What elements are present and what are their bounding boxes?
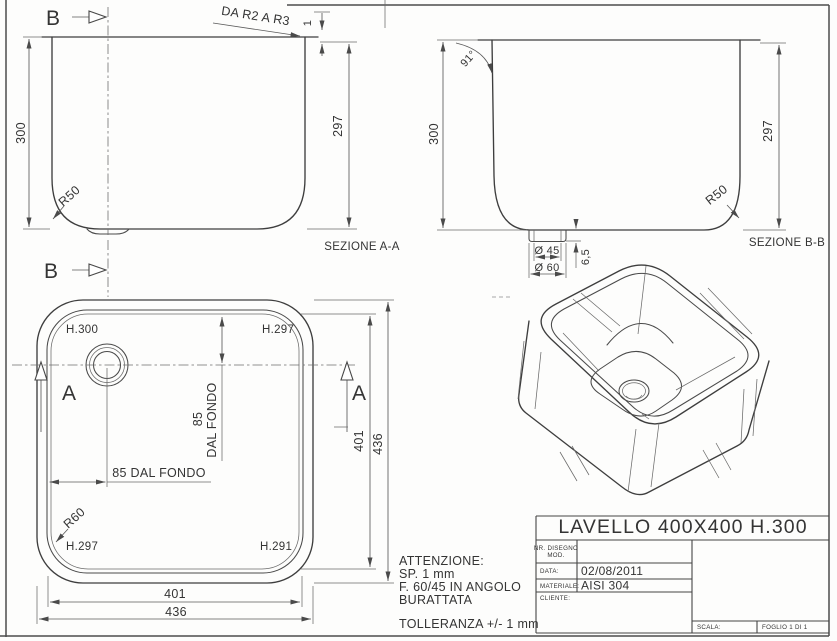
dim-aa-r50-label: R50: [56, 183, 83, 209]
dim-drain-offset-v-word: DAL FONDO: [205, 382, 219, 457]
dim-drain-offset-v-num: 85: [191, 412, 205, 427]
corner-height-top-left: H.300: [66, 324, 98, 336]
titleblock-scala-label: SCALA:: [697, 624, 721, 631]
section-aa-caption: SEZIONE A-A: [324, 241, 400, 253]
corner-height-bottom-right: H.291: [260, 541, 292, 553]
marker-a-left-label: A: [62, 382, 76, 405]
titleblock-materiale-label: MATERIALE:: [540, 583, 579, 590]
notes-block: ATTENZIONE: SP. 1 mm F. 60/45 IN ANGOLO …: [399, 554, 539, 631]
section-bb-view: 91° 300 297 R50 Ø 45 Ø 60 6,5 SEZIONE B-…: [427, 40, 825, 278]
dim-plan-width-inner: 401: [164, 587, 186, 601]
titleblock-data-label: DATA:: [540, 568, 559, 575]
titleblock-title: LAVELLO 400X400 H.300: [558, 516, 807, 538]
section-bb-caption: SEZIONE B-B: [749, 237, 825, 249]
dim-bb-r50-label: R50: [703, 182, 730, 208]
dim-plan-width-outer: 436: [165, 605, 187, 619]
corner-height-top-right: H.297: [262, 324, 294, 336]
marker-b-bottom-label: B: [44, 260, 58, 283]
titleblock-mod-label: MOD.: [547, 552, 564, 559]
note-tolleranza: TOLLERANZA +/- 1 mm: [399, 617, 539, 631]
titleblock-nr-disegno-label: NR. DISEGNO: [534, 545, 578, 552]
dim-bb-300-label: 300: [427, 123, 441, 145]
note-attenzione: ATTENZIONE:: [399, 554, 484, 568]
titleblock-data-value: 02/08/2011: [581, 564, 643, 578]
technical-drawing: B B DA R2 A R3 1 300 297 R50 SEZIONE A-A: [0, 0, 837, 641]
marker-a-right-label: A: [352, 382, 366, 405]
dim-aa-297-label: 297: [331, 115, 345, 137]
dim-plan-depth-outer: 436: [371, 433, 385, 455]
title-block: LAVELLO 400X400 H.300 NR. DISEGNO MOD. D…: [534, 516, 829, 633]
dim-drain-d60-label: Ø 60: [534, 262, 559, 274]
dim-drain-depth-label: 6,5: [580, 249, 592, 265]
note-f6045: F. 60/45 IN ANGOLO: [399, 580, 521, 594]
dim-bb-angle-label: 91°: [458, 48, 479, 69]
drawing-sheet: B B DA R2 A R3 1 300 297 R50 SEZIONE A-A: [0, 0, 837, 641]
dim-drain-offset-h-label: 85 DAL FONDO: [112, 466, 205, 480]
dim-plan-r60-label: R60: [61, 505, 88, 531]
titleblock-foglio-label: FOGLIO 1 DI 1: [762, 624, 808, 631]
corner-height-bottom-left: H.297: [66, 541, 98, 553]
titleblock-cliente-label: CLIENTE:: [540, 595, 570, 602]
section-aa-view: B B DA R2 A R3 1 300 297 R50 SEZIONE A-A: [14, 4, 400, 297]
dim-bb-297-label: 297: [761, 120, 775, 142]
note-burattata: BURATTATA: [399, 593, 473, 607]
marker-b-top-label: B: [46, 7, 60, 30]
dim-plan-depth-inner: 401: [352, 430, 366, 452]
note-sp: SP. 1 mm: [399, 567, 455, 581]
isometric-view: [492, 265, 769, 495]
titleblock-materiale-value: AISI 304: [581, 579, 629, 593]
plan-view: H.300 H.297 H.297 H.291 A A 85 DAL FONDO…: [12, 300, 394, 624]
sheet-frame: [0, 0, 829, 637]
edge-radius-note: DA R2 A R3: [220, 4, 290, 29]
dim-thickness-label: 1: [302, 20, 314, 26]
dim-drain-d45-label: Ø 45: [534, 245, 559, 257]
dim-aa-300-label: 300: [14, 122, 28, 144]
